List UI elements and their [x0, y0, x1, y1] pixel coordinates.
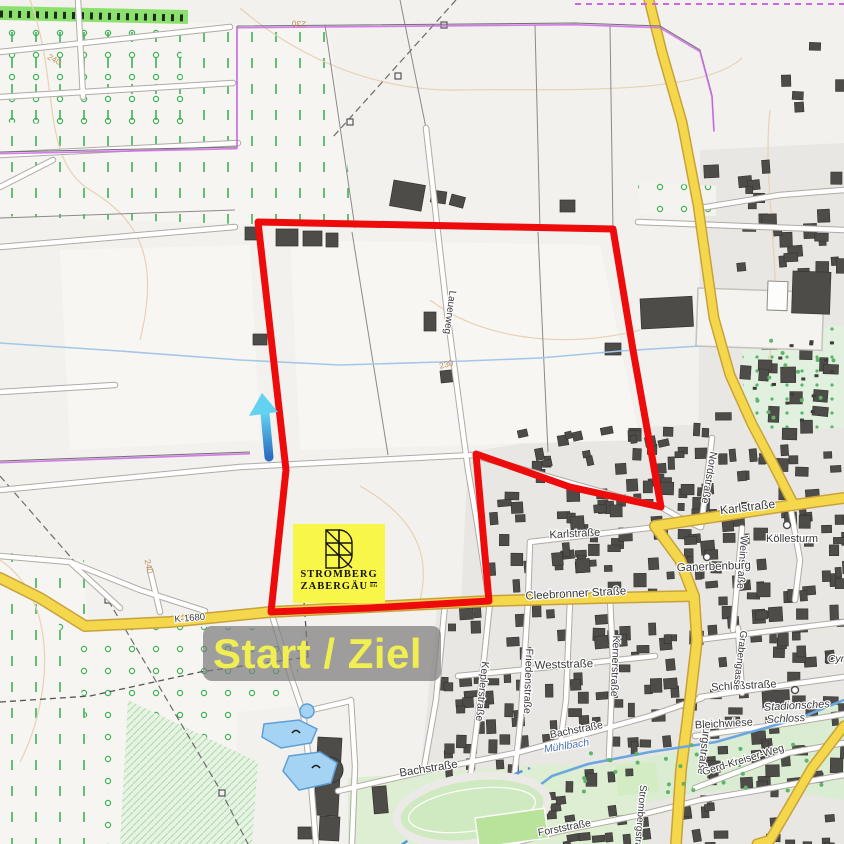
street-label: 230 [291, 18, 306, 29]
street-label: Köllesturm [766, 533, 818, 545]
logo-line1: STROMBERG [300, 569, 377, 581]
street-label: Cyr [828, 653, 844, 665]
logo-line2: ZABERGÄU [301, 581, 369, 592]
direction-arrow [265, 413, 269, 457]
poi-marker [792, 687, 799, 694]
poi-marker [704, 554, 711, 561]
map-canvas[interactable]: LauerwegKarlstraßeKarlstraßeNordstraßeWe… [0, 0, 844, 844]
street-label: Schloss [766, 712, 806, 726]
street-label: Weststraße [534, 658, 593, 672]
winery-monogram-icon [323, 529, 355, 569]
poi-marker [784, 522, 791, 529]
start-ziel-overlay: Start / Ziel [203, 626, 441, 681]
stromberg-zabergau-logo: STROMBERG ZABERGÄUEG [293, 524, 385, 603]
street-label: Friedenstraße [521, 648, 535, 714]
logo-line2-wrap: ZABERGÄUEG [301, 581, 378, 593]
logo-suffix: EG [370, 582, 377, 590]
map-screenshot: LauerwegKarlstraßeKarlstraßeNordstraßeWe… [0, 0, 844, 844]
street-label: Kernerstraße [608, 635, 622, 697]
start-ziel-label: Start / Ziel [213, 633, 422, 675]
